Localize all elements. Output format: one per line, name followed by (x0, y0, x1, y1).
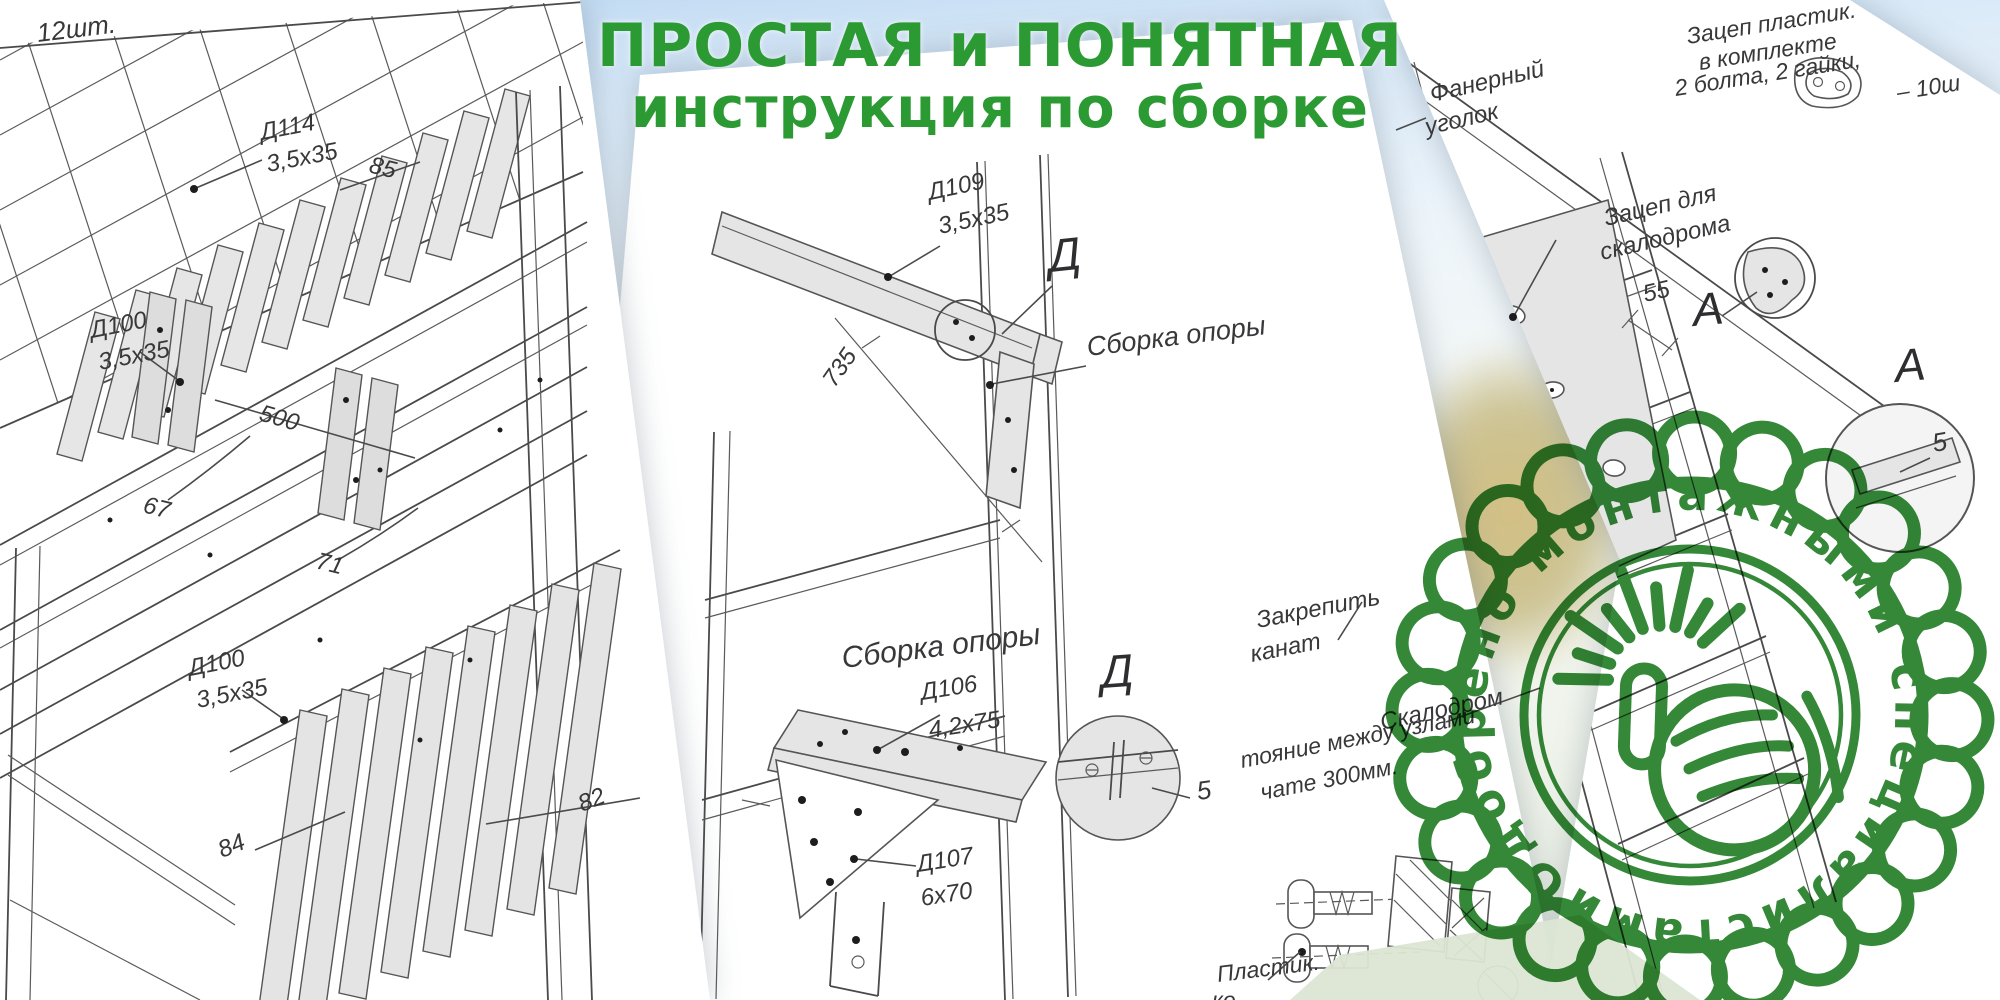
dim-5-middle: 5 (1195, 774, 1214, 806)
label-d106-size: 4,2х75 (927, 706, 1003, 744)
note-hook-qty: – 10ш (1894, 69, 1962, 105)
label-d107: Д107 (912, 842, 977, 878)
label-d109-size: 3,5х35 (936, 198, 1013, 240)
dim-67: 67 (141, 492, 175, 525)
label-d114-size: 3,5х35 (264, 138, 341, 178)
dim-82: 82 (574, 783, 609, 818)
label-d107-size: 6х70 (919, 877, 975, 912)
dim-500: 500 (256, 400, 303, 437)
label-d100b: Д100 (183, 644, 248, 682)
promo-collage: 12шт. Д114 3,5х35 85 Д100 3,5х35 500 67 … (0, 0, 2000, 1000)
title-block: ПРОСТАЯ и ПОНЯТНАЯ инструкция по сборке (540, 14, 1460, 140)
label-plastic: Пластик. (1215, 949, 1321, 987)
dim-84: 84 (214, 829, 249, 864)
label-d100a-size: 3,5х35 (96, 336, 173, 376)
label-d109: Д109 (923, 168, 987, 207)
dim-735: 735 (817, 343, 862, 392)
dim-71: 71 (314, 548, 346, 581)
marker-d-detail: Д (1094, 644, 1135, 698)
marker-d-top: Д (1041, 227, 1084, 283)
subtitle-support-assembly: Сборка опоры (840, 618, 1042, 675)
title-line-2: инструкция по сборке (540, 78, 1460, 140)
label-d100b-size: 3,5х35 (194, 674, 271, 714)
title-line-1: ПРОСТАЯ и ПОНЯТНАЯ (540, 14, 1460, 78)
callout-support-assembly: Сборка опоры (1085, 310, 1267, 362)
label-d114: Д114 (255, 109, 317, 147)
label-plastic-2: ко (1212, 987, 1236, 1000)
dim-55: 55 (1640, 275, 1673, 307)
label-d106: Д106 (916, 670, 980, 706)
label-d100a: Д100 (85, 306, 150, 344)
label-qty-note: 12шт. (35, 9, 117, 48)
